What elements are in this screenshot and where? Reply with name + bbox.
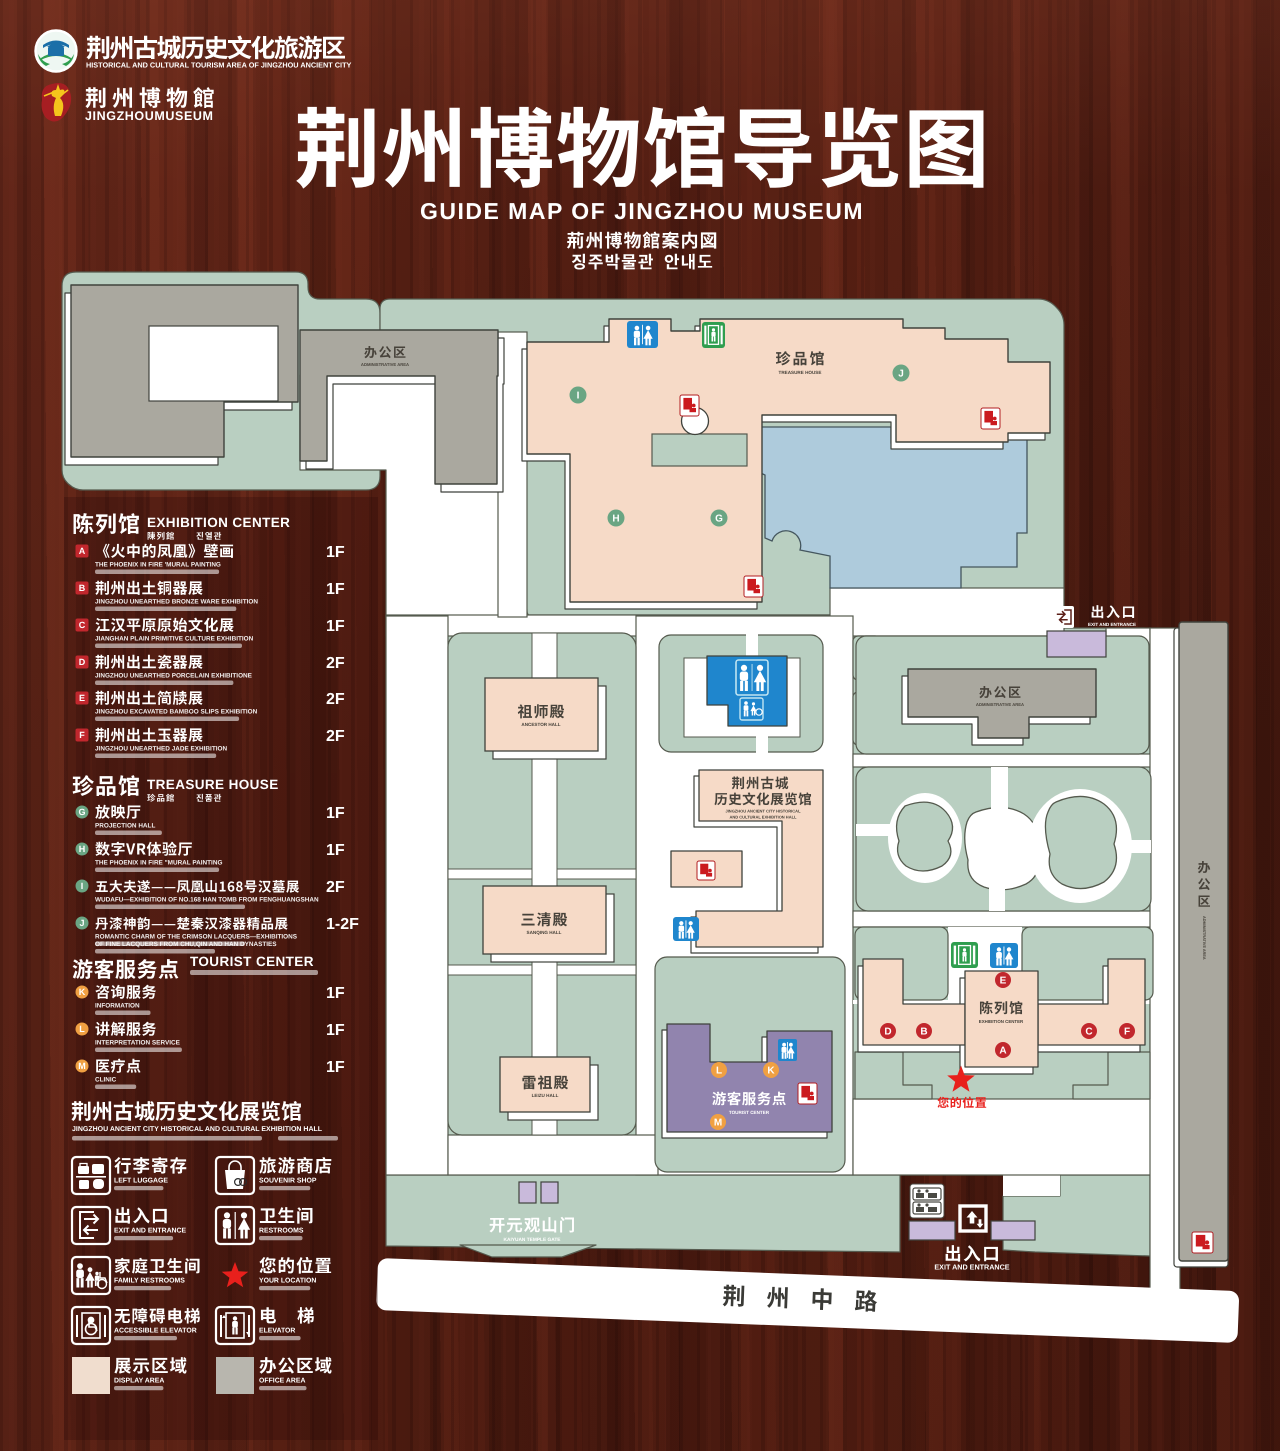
svg-text:H: H	[612, 514, 619, 525]
svg-text:EXHIBITION CENTER: EXHIBITION CENTER	[979, 1019, 1024, 1024]
svg-text:FAMILY RESTROOMS: FAMILY RESTROOMS	[114, 1278, 185, 1285]
svg-text:2F: 2F	[326, 655, 345, 672]
svg-text:A: A	[999, 1046, 1006, 1057]
svg-text:YOUR LOCATION: YOUR LOCATION	[259, 1278, 316, 1285]
svg-text:DISPLAY AREA: DISPLAY AREA	[114, 1378, 164, 1385]
svg-text:ACCESSIBLE ELEVATOR: ACCESSIBLE ELEVATOR	[114, 1328, 197, 1335]
svg-text:THE PHOENIX IN FIRE 'MURAL PAI: THE PHOENIX IN FIRE 'MURAL PAINTING	[95, 562, 221, 569]
svg-text:ANCESTOR HALL: ANCESTOR HALL	[521, 722, 560, 727]
svg-text:D: D	[884, 1027, 891, 1038]
svg-text:JINGZHOU EXCAVATED BAMBOO SLIP: JINGZHOU EXCAVATED BAMBOO SLIPS EXHIBITI…	[95, 709, 258, 716]
svg-text:AND CULTURAL EXHIBITION HALL: AND CULTURAL EXHIBITION HALL	[730, 815, 798, 820]
svg-text:THE PHOENIX IN FIRE "MURAL PAI: THE PHOENIX IN FIRE "MURAL PAINTING	[95, 860, 222, 867]
svg-text:2F: 2F	[326, 728, 345, 745]
svg-text:C: C	[79, 620, 86, 630]
svg-text:1F: 1F	[326, 805, 345, 822]
svg-text:JINGZHOU UNEARTHED JADE EXHIBI: JINGZHOU UNEARTHED JADE EXHIBITION	[95, 746, 227, 753]
svg-text:1F: 1F	[326, 1059, 345, 1076]
svg-text:LEIZU HALL: LEIZU HALL	[532, 1093, 559, 1098]
svg-text:1F: 1F	[326, 842, 345, 859]
svg-text:J: J	[898, 369, 904, 380]
svg-text:C: C	[1085, 1027, 1092, 1038]
svg-text:LEFT LUGGAGE: LEFT LUGGAGE	[114, 1178, 168, 1185]
svg-text:1F: 1F	[326, 985, 345, 1002]
svg-text:JINGZHOU UNEARTHED BRONZE WARE: JINGZHOU UNEARTHED BRONZE WARE EXHIBITIO…	[95, 599, 258, 606]
svg-text:TREASURE HOUSE: TREASURE HOUSE	[779, 370, 822, 375]
svg-text:M: M	[714, 1118, 722, 1129]
svg-text:L: L	[716, 1066, 722, 1077]
svg-text:EXHIBITION CENTER: EXHIBITION CENTER	[147, 515, 290, 530]
svg-text:B: B	[920, 1027, 927, 1038]
svg-text:A: A	[79, 546, 86, 556]
svg-text:EXIT AND ENTRANCE: EXIT AND ENTRANCE	[114, 1228, 187, 1235]
svg-text:TREASURE HOUSE: TREASURE HOUSE	[147, 777, 279, 792]
svg-text:SANQING HALL: SANQING HALL	[527, 930, 562, 935]
svg-text:J: J	[79, 918, 84, 928]
svg-text:K: K	[79, 987, 86, 997]
svg-text:INTERPRETATION SERVICE: INTERPRETATION SERVICE	[95, 1040, 181, 1047]
svg-text:JINGZHOU ANCIENT CITY HISTORIC: JINGZHOU ANCIENT CITY HISTORICAL AND CUL…	[72, 1126, 323, 1133]
svg-text:G: G	[715, 514, 723, 525]
svg-text:1F: 1F	[326, 618, 345, 635]
svg-text:TOURIST CENTER: TOURIST CENTER	[729, 1110, 770, 1115]
svg-text:HISTORICAL AND CULTURAL TOURIS: HISTORICAL AND CULTURAL TOURISM AREA OF …	[86, 61, 352, 70]
svg-text:ADMINISTRATIVE AREA: ADMINISTRATIVE AREA	[976, 702, 1024, 707]
svg-text:2F: 2F	[326, 691, 345, 708]
svg-text:SOUVENIR SHOP: SOUVENIR SHOP	[259, 1178, 317, 1185]
svg-text:JINGZHOUMUSEUM: JINGZHOUMUSEUM	[85, 109, 214, 123]
svg-text:GUIDE MAP OF JINGZHOU MUSEUM: GUIDE MAP OF JINGZHOU MUSEUM	[420, 198, 864, 224]
svg-text:KAIYUAN TEMPLE GATE: KAIYUAN TEMPLE GATE	[504, 1237, 562, 1243]
svg-text:INFORMATION: INFORMATION	[95, 1003, 140, 1010]
svg-text:ADMINISTRATIVE AREA: ADMINISTRATIVE AREA	[1202, 916, 1206, 960]
svg-text:CLINIC: CLINIC	[95, 1077, 117, 1084]
svg-text:1-2F: 1-2F	[326, 916, 359, 933]
svg-text:JIANGHAN PLAIN PRIMITIVE CULTU: JIANGHAN PLAIN PRIMITIVE CULTURE EXHIBIT…	[95, 636, 254, 643]
svg-text:D: D	[79, 657, 86, 667]
svg-text:M: M	[78, 1061, 86, 1071]
svg-text:ADMINISTRATIVE AREA: ADMINISTRATIVE AREA	[361, 362, 409, 367]
svg-text:PROJECTION HALL: PROJECTION HALL	[95, 823, 155, 830]
svg-text:EXIT AND ENTRANCE: EXIT AND ENTRANCE	[1088, 622, 1136, 627]
svg-text:F: F	[1124, 1027, 1130, 1038]
svg-text:EXIT AND ENTRANCE: EXIT AND ENTRANCE	[934, 1263, 1009, 1272]
svg-text:I: I	[577, 391, 580, 402]
svg-text:OF FINE LACQUERS FROM CHU,QIN: OF FINE LACQUERS FROM CHU,QIN AND HAN DY…	[95, 941, 277, 948]
svg-text:ROMANTIC CHARM OF THE CRIMSON: ROMANTIC CHARM OF THE CRIMSON LACQUERS—E…	[95, 934, 298, 941]
svg-text:1F: 1F	[326, 544, 345, 561]
svg-text:H: H	[79, 844, 86, 854]
svg-text:JINGZHOU UNEARTHED PORCELAIN E: JINGZHOU UNEARTHED PORCELAIN EXHIBITIONE	[95, 673, 253, 680]
svg-text:G: G	[78, 807, 85, 817]
svg-text:E: E	[1000, 976, 1007, 987]
svg-text:TOURIST CENTER: TOURIST CENTER	[190, 954, 314, 969]
svg-text:E: E	[79, 693, 85, 703]
svg-text:ELEVATOR: ELEVATOR	[259, 1328, 295, 1335]
svg-text:F: F	[79, 730, 85, 740]
svg-text:I: I	[81, 881, 84, 891]
svg-text:WUDAFU—EXHIBITION OF NO.168 HA: WUDAFU—EXHIBITION OF NO.168 HAN TOMB FRO…	[95, 897, 319, 904]
svg-text:1F: 1F	[326, 1022, 345, 1039]
svg-text:OFFICE AREA: OFFICE AREA	[259, 1378, 305, 1385]
svg-text:RESTROOMS: RESTROOMS	[259, 1228, 304, 1235]
svg-text:1F: 1F	[326, 581, 345, 598]
svg-text:K: K	[767, 1066, 775, 1077]
svg-text:B: B	[79, 583, 86, 593]
svg-text:JINGZHOU ANCIENT CITY HISTORIC: JINGZHOU ANCIENT CITY HISTORICAL	[725, 809, 801, 814]
svg-text:L: L	[79, 1024, 85, 1034]
svg-text:2F: 2F	[326, 879, 345, 896]
